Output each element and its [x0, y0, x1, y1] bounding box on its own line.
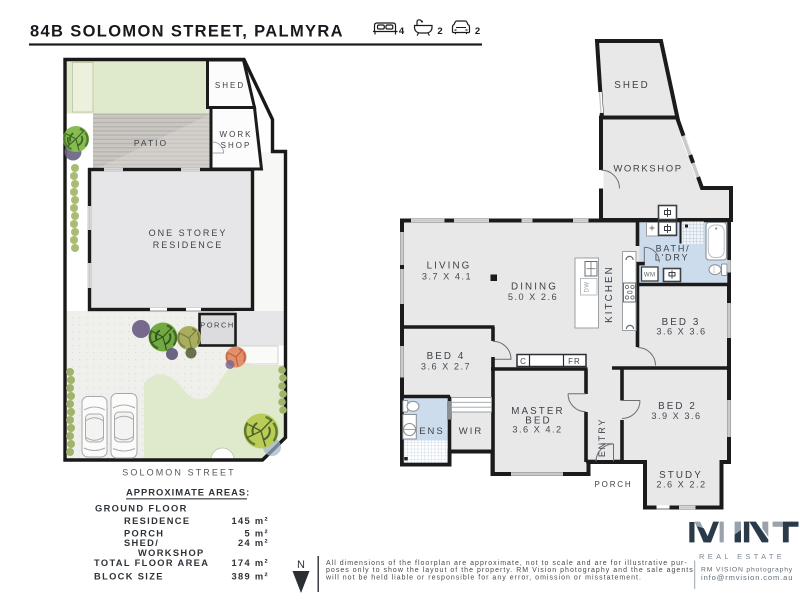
svg-text:WORKSHOP: WORKSHOP	[613, 164, 682, 175]
svg-text:GROUND FLOOR: GROUND FLOOR	[95, 504, 188, 514]
svg-text:ENTRY: ENTRY	[597, 418, 607, 457]
svg-text:174 m²: 174 m²	[231, 558, 269, 568]
svg-text:ONE STOREY: ONE STOREY	[149, 228, 228, 238]
svg-text:5.0 X 2.6: 5.0 X 2.6	[508, 292, 558, 302]
svg-text:24 m²: 24 m²	[238, 538, 269, 548]
svg-text:All dimensions of the floorpla: All dimensions of the floorplan are appr…	[326, 560, 688, 567]
svg-text:DINING: DINING	[511, 282, 558, 293]
svg-text:PORCH: PORCH	[595, 480, 633, 489]
svg-text:2: 2	[475, 26, 480, 37]
svg-text:SHED: SHED	[614, 80, 650, 91]
svg-text:SHED/: SHED/	[124, 538, 159, 548]
svg-text:will not be held liable or res: will not be held liable or responsible f…	[325, 574, 642, 581]
svg-text:FR: FR	[568, 357, 581, 366]
svg-text:3.6 X 4.2: 3.6 X 4.2	[512, 425, 562, 435]
svg-text:BLOCK SIZE: BLOCK SIZE	[94, 572, 164, 582]
svg-text:389 m²: 389 m²	[231, 572, 269, 582]
svg-text:N: N	[297, 559, 305, 571]
svg-text:PATIO: PATIO	[134, 138, 168, 148]
svg-text:RESIDENCE: RESIDENCE	[153, 240, 224, 250]
svg-text:5 m²: 5 m²	[244, 529, 269, 539]
svg-text:DW: DW	[585, 282, 591, 293]
svg-text:SOLOMON STREET: SOLOMON STREET	[122, 468, 235, 478]
svg-text:SHOP: SHOP	[221, 141, 252, 150]
svg-text:KITCHEN: KITCHEN	[604, 265, 615, 323]
svg-text:LIVING: LIVING	[427, 261, 472, 272]
svg-text:3.6 X 3.6: 3.6 X 3.6	[656, 327, 706, 337]
svg-text:WORK: WORK	[220, 130, 253, 139]
svg-text:WM: WM	[644, 273, 656, 279]
svg-text:3.6 X 2.7: 3.6 X 2.7	[421, 362, 471, 372]
svg-text:WIR: WIR	[459, 426, 483, 437]
svg-text:2.6 X 2.2: 2.6 X 2.2	[656, 480, 706, 490]
svg-text:84B SOLOMON STREET, PALMYRA: 84B SOLOMON STREET, PALMYRA	[30, 23, 344, 41]
svg-text:info@rmvision.com.au: info@rmvision.com.au	[701, 573, 793, 582]
svg-text:145 m²: 145 m²	[231, 516, 269, 526]
svg-text:SHED: SHED	[215, 81, 245, 90]
svg-text:ENS: ENS	[419, 426, 445, 437]
svg-text:C: C	[520, 357, 526, 366]
svg-text:REAL ESTATE: REAL ESTATE	[699, 552, 785, 561]
svg-text:APPROXIMATE AREAS:: APPROXIMATE AREAS:	[126, 487, 250, 498]
svg-text:poses only to show the layout: poses only to show the layout of the pro…	[326, 567, 694, 574]
svg-text:TOTAL FLOOR AREA: TOTAL FLOOR AREA	[94, 558, 209, 568]
svg-text:L'DRY: L'DRY	[655, 253, 690, 263]
svg-text:4: 4	[399, 26, 405, 37]
svg-text:3.9 X 3.6: 3.9 X 3.6	[651, 411, 701, 421]
svg-text:RESIDENCE: RESIDENCE	[124, 516, 190, 526]
svg-text:PORCH: PORCH	[124, 529, 164, 539]
svg-text:WORKSHOP: WORKSHOP	[138, 548, 205, 558]
svg-text:PORCH: PORCH	[200, 321, 235, 330]
svg-text:BED 4: BED 4	[427, 351, 466, 362]
svg-text:2: 2	[437, 26, 442, 37]
svg-text:3.7 X 4.1: 3.7 X 4.1	[422, 272, 472, 282]
